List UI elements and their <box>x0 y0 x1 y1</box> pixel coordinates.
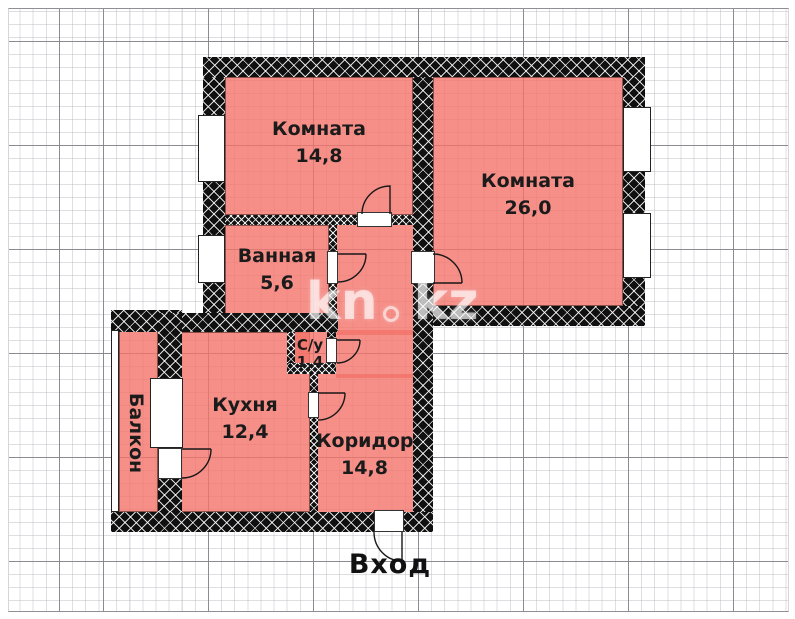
label-wc-area: 1,4 <box>285 354 335 371</box>
door-gap-entrance <box>374 510 404 532</box>
door-gap-balcony <box>158 448 182 479</box>
window-balcony-kitchen <box>150 378 183 448</box>
partition-room1-left <box>225 215 357 225</box>
watermark: knkz <box>306 276 478 328</box>
watermark-dot-icon <box>383 306 399 322</box>
label-wc: С/у 1,4 <box>285 337 335 371</box>
watermark-prefix: kn <box>306 276 378 328</box>
wall-balcony-kitchen-lower <box>158 479 182 512</box>
partition-bath-upper <box>329 225 337 251</box>
entrance-label: Вход <box>330 550 450 580</box>
label-balcony-name: Балкон <box>122 378 149 488</box>
wall-top <box>203 57 645 77</box>
window-room2-right-1 <box>623 107 651 172</box>
label-kitchen-name: Кухня <box>180 392 310 419</box>
label-corridor-area: 14,8 <box>316 455 413 482</box>
watermark-suffix: kz <box>414 276 479 328</box>
partition-room1-right <box>392 215 413 225</box>
label-kitchen-area: 12,4 <box>180 419 310 446</box>
partition-kitchen-corridor-upper <box>310 374 318 392</box>
label-room1-area: 14,8 <box>225 143 413 170</box>
label-room1-name: Комната <box>225 116 413 143</box>
label-room2-area: 26,0 <box>433 195 623 222</box>
label-bathroom-name: Ванная <box>225 243 329 270</box>
room-corridor-mid <box>336 330 413 378</box>
label-balcony: Балкон <box>125 378 149 488</box>
wall-balcony-kitchen-upper <box>158 313 182 378</box>
window-room1-left <box>198 115 225 182</box>
window-bath-left <box>198 235 225 283</box>
label-corridor-name: Коридор <box>316 428 413 455</box>
balcony-glazing-wall <box>111 330 119 512</box>
window-room2-right-2 <box>623 213 651 278</box>
wall-center-vertical-upper <box>413 77 433 251</box>
label-wc-name: С/у <box>285 337 335 354</box>
label-room1: Комната 14,8 <box>225 116 413 170</box>
door-gap-room1 <box>357 212 392 227</box>
floor-plan-canvas: Комната 14,8 Комната 26,0 Ванная 5,6 С/у… <box>0 0 795 619</box>
label-corridor: Коридор 14,8 <box>316 428 413 482</box>
label-room2: Комната 26,0 <box>433 168 623 222</box>
label-kitchen: Кухня 12,4 <box>180 392 310 446</box>
label-room2-name: Комната <box>433 168 623 195</box>
